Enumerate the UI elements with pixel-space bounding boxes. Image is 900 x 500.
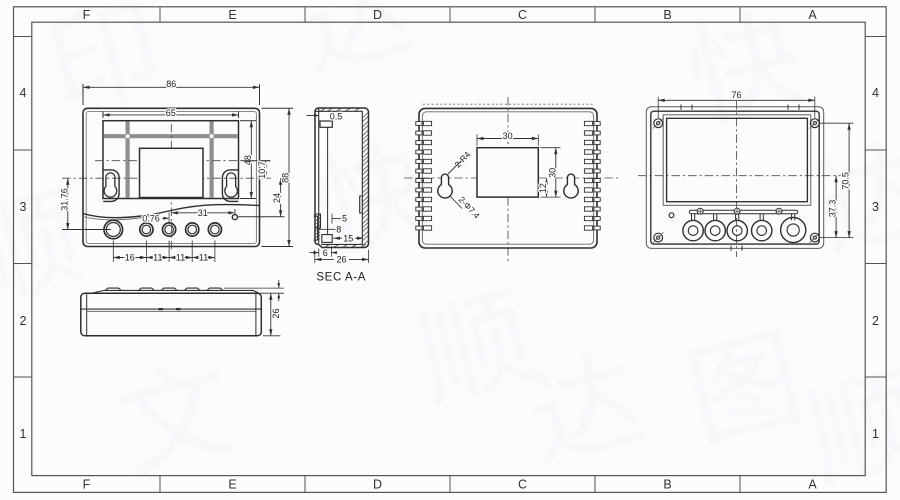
svg-text:16: 16: [125, 253, 135, 263]
svg-text:8: 8: [336, 224, 341, 234]
svg-text:2: 2: [872, 314, 879, 328]
svg-text:F: F: [83, 8, 91, 22]
svg-text:6: 6: [323, 248, 328, 258]
svg-text:70.5: 70.5: [841, 172, 851, 190]
svg-text:3: 3: [872, 200, 879, 214]
svg-text:26: 26: [271, 308, 281, 318]
svg-text:12: 12: [538, 183, 548, 193]
svg-text:86: 86: [166, 79, 176, 89]
svg-text:88: 88: [281, 173, 291, 183]
svg-text:4: 4: [20, 86, 27, 100]
svg-text:4: 4: [872, 86, 879, 100]
svg-text:26: 26: [336, 254, 346, 264]
svg-text:1: 1: [20, 427, 27, 441]
svg-text:31: 31: [198, 208, 208, 218]
svg-text:D: D: [373, 477, 382, 491]
svg-text:15: 15: [343, 233, 353, 243]
svg-text:E: E: [228, 477, 236, 491]
svg-text:F: F: [83, 477, 91, 491]
svg-text:SEC A-A: SEC A-A: [316, 272, 366, 284]
svg-text:30: 30: [547, 168, 557, 178]
svg-text:48: 48: [243, 155, 253, 165]
svg-text:C: C: [518, 8, 527, 22]
svg-text:11: 11: [176, 253, 185, 263]
svg-text:24: 24: [272, 193, 282, 203]
svg-text:0.76: 0.76: [142, 213, 160, 223]
svg-text:37.3: 37.3: [828, 200, 838, 218]
svg-text:3: 3: [20, 200, 27, 214]
svg-text:76: 76: [731, 90, 741, 100]
svg-text:C: C: [518, 477, 527, 491]
svg-text:5: 5: [342, 214, 347, 224]
svg-text:B: B: [663, 8, 671, 22]
svg-text:2: 2: [20, 314, 27, 328]
svg-text:1: 1: [872, 427, 879, 441]
svg-text:B: B: [663, 477, 671, 491]
svg-text:E: E: [228, 8, 236, 22]
svg-text:30: 30: [503, 131, 513, 141]
svg-text:11: 11: [199, 253, 208, 263]
svg-text:11: 11: [153, 253, 162, 263]
svg-text:65: 65: [166, 108, 176, 118]
svg-text:A: A: [808, 8, 817, 22]
svg-text:D: D: [373, 8, 382, 22]
svg-text:A: A: [808, 477, 817, 491]
svg-text:31.76: 31.76: [59, 188, 69, 211]
svg-text:10.7: 10.7: [257, 161, 267, 179]
svg-text:0.5: 0.5: [330, 111, 343, 121]
